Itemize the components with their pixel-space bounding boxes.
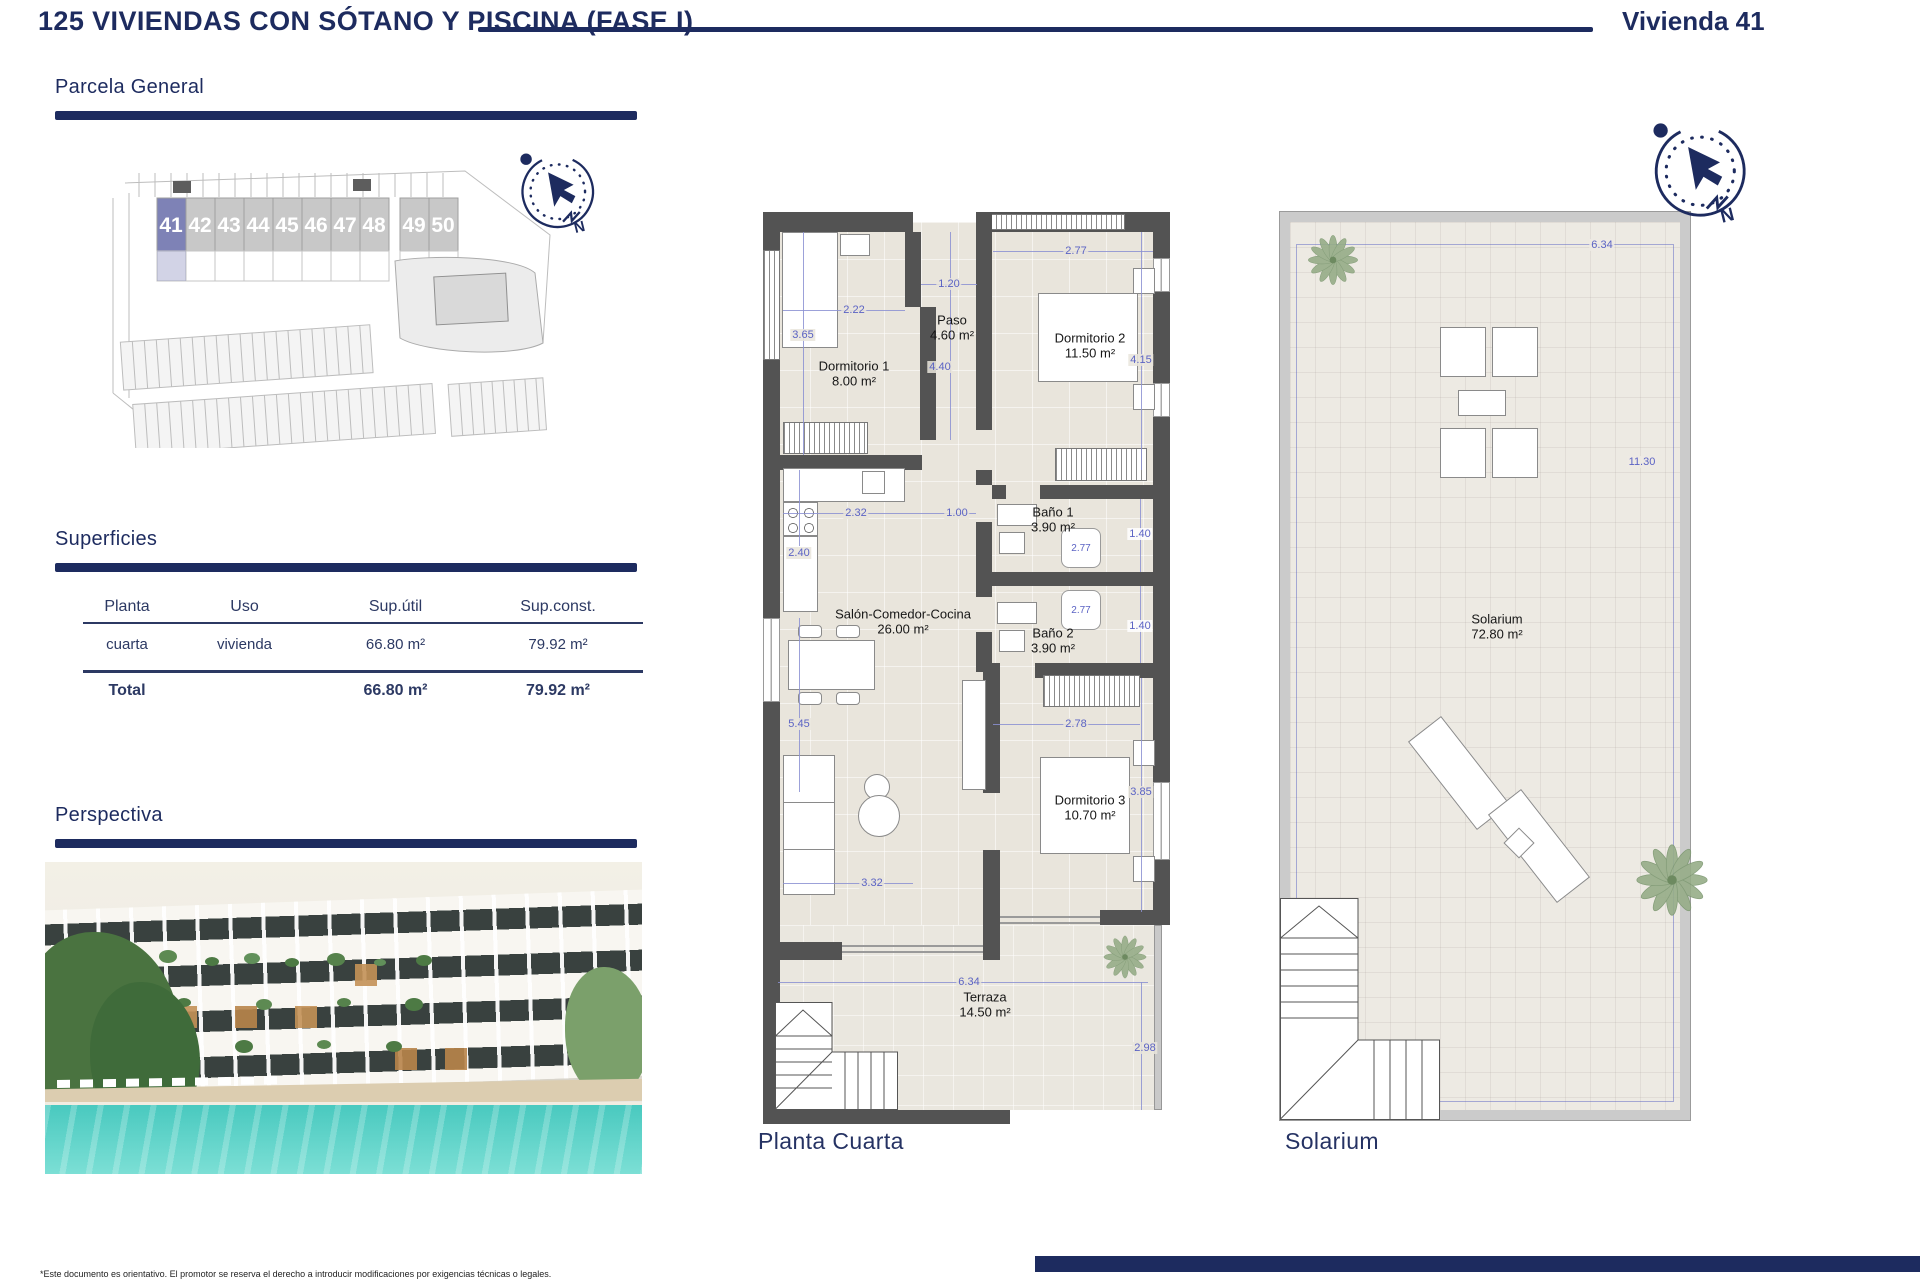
window <box>763 618 780 702</box>
wardrobe <box>1055 448 1147 481</box>
site-plan: 41 42 43 44 45 46 47 48 49 50 <box>95 143 555 448</box>
wardrobe <box>783 422 868 454</box>
kitchen-sink <box>862 471 885 494</box>
dim-label: 1.40 <box>1127 528 1152 540</box>
footer-disclaimer: *Este documento es orientativo. El promo… <box>40 1269 551 1279</box>
floorplan-caption: Planta Cuarta <box>758 1128 904 1155</box>
solarium-stairs <box>1280 898 1440 1120</box>
window <box>1153 782 1170 860</box>
unit-number: 50 <box>431 214 454 237</box>
page-title: 125 VIVIENDAS CON SÓTANO Y PISCINA (FASE… <box>38 6 693 37</box>
unit-number: 48 <box>362 214 386 237</box>
dim-label: 3.85 <box>1128 786 1153 798</box>
room-label-salon: Salón-Comedor-Cocina26.00 m² <box>835 607 971 638</box>
wall-segment <box>763 212 780 250</box>
site-entrance-left <box>173 181 191 193</box>
wall-segment <box>763 212 913 232</box>
perspectiva-underline <box>55 839 637 848</box>
wall-segment <box>763 942 842 960</box>
window-strip <box>985 214 1125 230</box>
chair <box>836 692 860 705</box>
table <box>1458 390 1506 416</box>
unit-number: 43 <box>217 214 240 237</box>
total-label: Total <box>83 682 171 700</box>
solarium-caption: Solarium <box>1285 1128 1379 1155</box>
sun-lounger <box>1440 428 1486 478</box>
wall-segment <box>1153 417 1170 782</box>
col-header-sup-util: Sup.útil <box>318 598 473 616</box>
dim-label: 3.65 <box>790 329 815 341</box>
unit-label: Vivienda 41 <box>1622 6 1765 37</box>
room-label-dormitorio-2: Dormitorio 211.50 m² <box>1055 331 1126 362</box>
wall-segment <box>763 360 780 618</box>
terrace-front-wall <box>763 1110 1010 1124</box>
surfaces-table: Planta Uso Sup.útil Sup.const. cuarta vi… <box>83 594 643 709</box>
balcony-door <box>1000 916 1100 918</box>
wall-segment <box>1100 910 1170 925</box>
chair <box>798 692 822 705</box>
dim-shower-1: 2.77 <box>1071 543 1090 554</box>
dim-label: 4.40 <box>927 361 952 373</box>
dim-label: 2.40 <box>786 547 811 559</box>
table-total-row: Total 66.80 m² 79.92 m² <box>83 673 643 709</box>
dim-label: 3.32 <box>859 877 884 889</box>
room-label-terraza: Terraza14.50 m² <box>959 990 1010 1021</box>
dim-label: 5.45 <box>786 718 811 730</box>
table-row: cuarta vivienda 66.80 m² 79.92 m² <box>83 624 643 664</box>
room-label-dormitorio-3: Dormitorio 310.70 m² <box>1055 793 1126 824</box>
dim-label: 2.22 <box>841 304 866 316</box>
dining-table <box>788 640 875 690</box>
palm-tree-icon <box>1101 933 1149 981</box>
wall-segment <box>976 212 992 430</box>
unit-number: 41 <box>159 214 183 237</box>
room-label-paso: Paso4.60 m² <box>930 313 974 344</box>
kitchen-counter <box>783 468 905 502</box>
wall-segment <box>983 663 1000 678</box>
wall-segment <box>992 485 1006 499</box>
tv-unit <box>962 680 986 790</box>
dim-label: 1.00 <box>944 507 969 519</box>
room-label-solarium: Solarium72.80 m² <box>1471 612 1522 643</box>
section-title-superficies: Superficies <box>55 528 157 551</box>
wall-segment <box>976 470 992 485</box>
col-header-sup-const: Sup.const. <box>473 598 643 616</box>
balcony-door <box>842 945 983 947</box>
unit-number: 49 <box>402 214 425 237</box>
room-label-bano-1: Baño 13.90 m² <box>1031 505 1075 536</box>
render-pool-water <box>45 1102 642 1174</box>
nightstand <box>1133 856 1155 882</box>
window <box>1153 383 1170 417</box>
dim-label: 1.40 <box>1127 620 1152 632</box>
sun-lounger <box>1492 428 1538 478</box>
floorplan-planta-cuarta: 2.77 2.77 <box>763 212 1170 1124</box>
toilet <box>999 630 1025 652</box>
room-label-bano-2: Baño 23.90 m² <box>1031 626 1075 657</box>
parcela-underline <box>55 111 637 120</box>
footer-bar <box>1035 1256 1920 1272</box>
plan-sheet: 125 VIVIENDAS CON SÓTANO Y PISCINA (FASE… <box>0 0 1920 1280</box>
dim-label: 2.32 <box>843 507 868 519</box>
dim-label: 2.98 <box>1132 1042 1157 1054</box>
site-entrance-right <box>353 179 371 191</box>
dim-label: 11.30 <box>1627 456 1658 468</box>
unit-number: 42 <box>188 214 211 237</box>
wall-segment <box>983 850 1000 960</box>
sofa <box>783 755 835 895</box>
armchair <box>858 795 900 837</box>
perspective-render <box>45 862 642 1174</box>
stove-icon <box>783 502 818 536</box>
window-strip <box>763 250 780 360</box>
sun-lounger <box>1492 327 1538 377</box>
balcony-door <box>1000 922 1100 924</box>
bathroom-vanity <box>997 602 1037 624</box>
superficies-underline <box>55 563 637 572</box>
palm-tree-icon <box>1305 232 1361 288</box>
toilet <box>999 532 1025 554</box>
site-pool <box>434 273 508 325</box>
nightstand <box>1133 268 1155 294</box>
wardrobe <box>1043 675 1140 707</box>
unit-number: 44 <box>246 214 270 237</box>
dim-label: 6.34 <box>1589 239 1614 251</box>
wall-segment <box>976 522 992 597</box>
shower: 2.77 <box>1061 590 1101 630</box>
cell-sup-util: 66.80 m² <box>318 636 473 653</box>
col-header-planta: Planta <box>83 598 171 616</box>
terrace-stairs <box>775 1002 898 1110</box>
cell-planta: cuarta <box>83 636 171 653</box>
unit-number: 46 <box>304 214 327 237</box>
wall-segment <box>1153 292 1170 383</box>
site-unit-41-garden <box>157 251 186 281</box>
compass-icon <box>1643 114 1753 224</box>
window <box>1153 258 1170 292</box>
section-title-perspectiva: Perspectiva <box>55 804 163 827</box>
terrace-parapet <box>1154 925 1162 1110</box>
compass-icon <box>512 146 600 234</box>
unit-number: 47 <box>333 214 356 237</box>
total-sup-util: 66.80 m² <box>318 682 473 700</box>
dim-label: 2.77 <box>1063 245 1088 257</box>
dim-label: 1.20 <box>936 278 961 290</box>
wall-segment <box>1153 212 1170 258</box>
col-header-uso: Uso <box>171 598 318 616</box>
section-title-parcela: Parcela General <box>55 76 204 99</box>
dim-label: 6.34 <box>956 976 981 988</box>
dim-shower-2: 2.77 <box>1071 605 1090 616</box>
wall-segment <box>763 702 780 942</box>
unit-number: 45 <box>275 214 299 237</box>
balcony-door <box>842 951 983 953</box>
cell-uso: vivienda <box>171 636 318 653</box>
palm-tree-icon <box>1632 840 1712 920</box>
chair <box>798 625 822 638</box>
wall-segment <box>992 572 1153 586</box>
nightstand <box>1133 384 1155 410</box>
sun-lounger <box>1440 327 1486 377</box>
cell-sup-const: 79.92 m² <box>473 636 643 653</box>
nightstand <box>840 234 870 256</box>
total-sup-const: 79.92 m² <box>473 682 643 700</box>
header-divider <box>478 27 1593 32</box>
solarium-plan: 6.34 11.30 Solarium72.80 m² <box>1280 212 1690 1120</box>
wall-segment <box>905 232 921 307</box>
dim-label: 4.15 <box>1128 354 1153 366</box>
wall-segment <box>1040 485 1153 499</box>
room-label-dormitorio-1: Dormitorio 18.00 m² <box>819 359 890 390</box>
nightstand <box>1133 740 1155 766</box>
dim-label: 2.78 <box>1063 718 1088 730</box>
